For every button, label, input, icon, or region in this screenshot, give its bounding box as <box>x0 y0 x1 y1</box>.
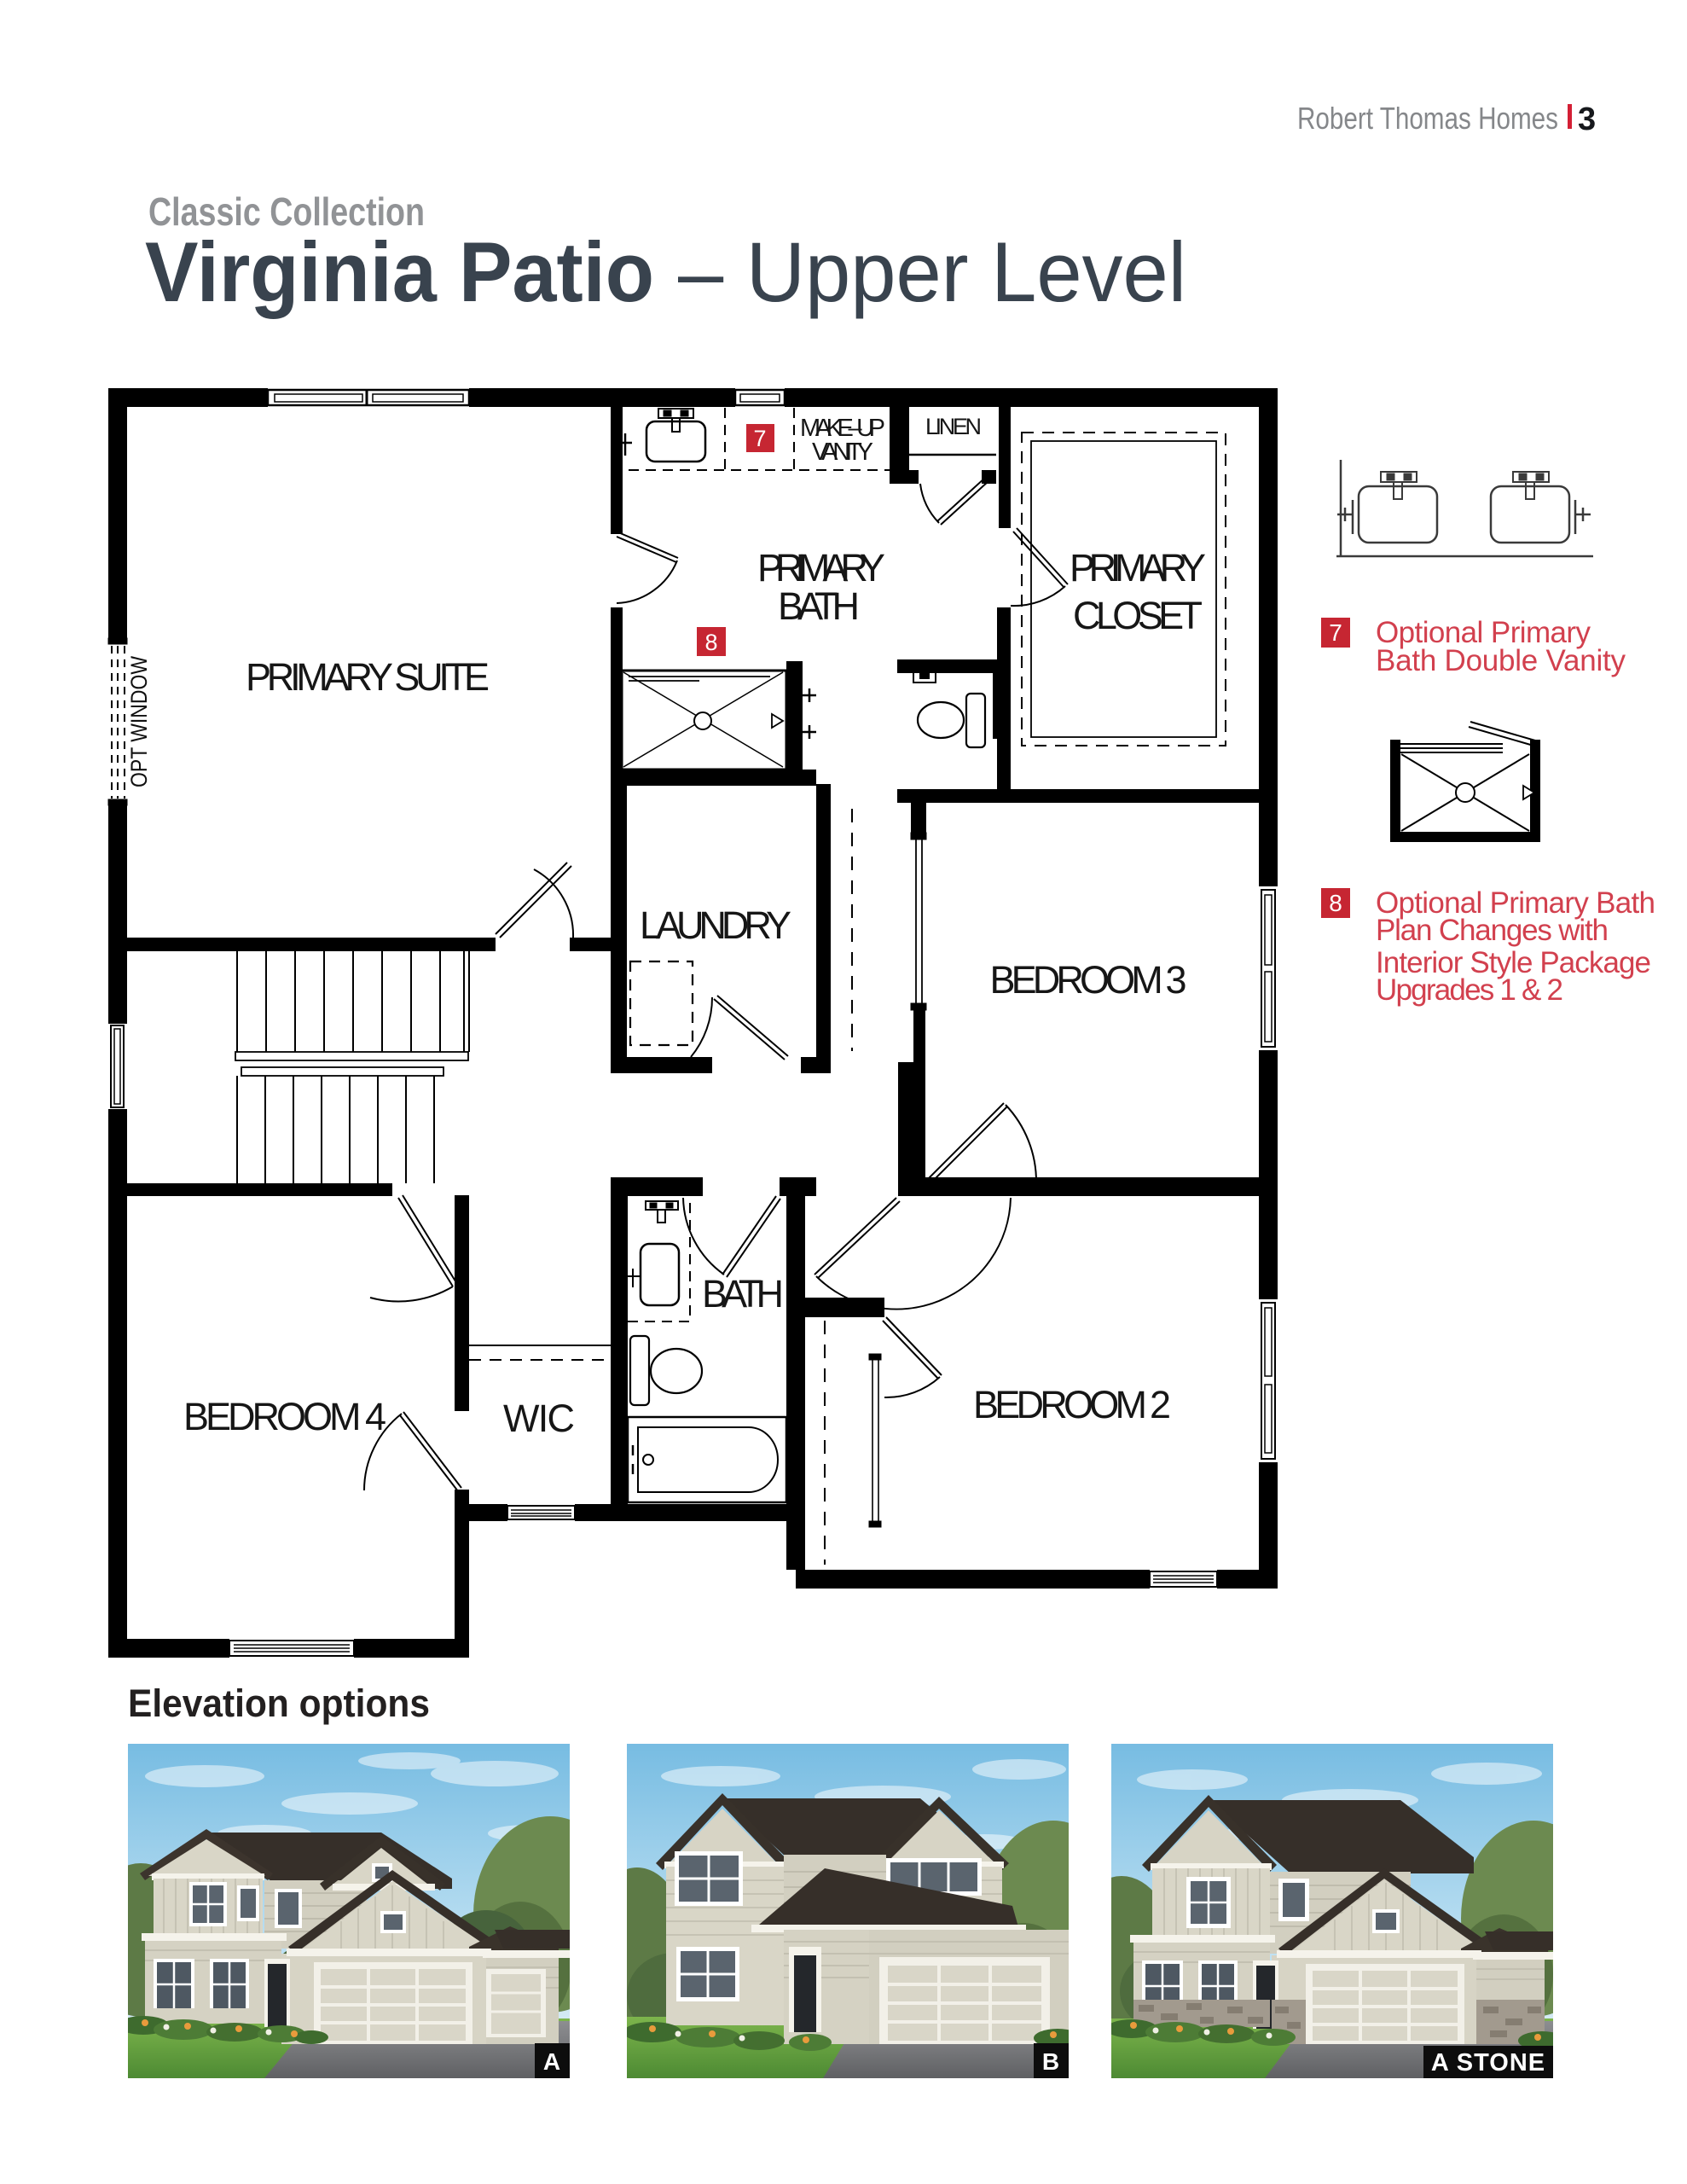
svg-text:Upgrades 1 & 2: Upgrades 1 & 2 <box>1376 973 1563 1007</box>
svg-text:PRIMARY SUITE: PRIMARY SUITE <box>246 655 490 699</box>
svg-text:A: A <box>543 2048 560 2075</box>
svg-text:Virginia Patio: Virginia Patio <box>145 224 654 319</box>
svg-text:BATH: BATH <box>778 584 860 628</box>
svg-text:8: 8 <box>1329 890 1342 916</box>
svg-text:Elevation options: Elevation options <box>128 1682 430 1725</box>
svg-text:7: 7 <box>1329 619 1342 646</box>
svg-text:PRIMARY: PRIMARY <box>1070 546 1206 590</box>
svg-text:CLOSET: CLOSET <box>1073 594 1203 637</box>
svg-text:LAUNDRY: LAUNDRY <box>640 903 791 947</box>
svg-text:Plan Changes with: Plan Changes with <box>1376 914 1609 947</box>
svg-text:– Upper Level: – Upper Level <box>678 224 1186 319</box>
svg-text:3: 3 <box>1578 102 1596 137</box>
svg-text:Robert Thomas Homes: Robert Thomas Homes <box>1297 101 1558 136</box>
svg-text:PRIMARY: PRIMARY <box>757 546 885 590</box>
svg-text:A STONE: A STONE <box>1431 2049 1545 2077</box>
svg-text:BEDROOM 2: BEDROOM 2 <box>973 1383 1171 1426</box>
svg-text:OPT WINDOW: OPT WINDOW <box>126 656 152 787</box>
svg-text:VANITY: VANITY <box>812 439 873 466</box>
svg-text:WIC: WIC <box>503 1397 575 1440</box>
svg-text:7: 7 <box>753 426 766 451</box>
svg-text:BEDROOM 3: BEDROOM 3 <box>990 958 1187 1002</box>
svg-text:Bath Double Vanity: Bath Double Vanity <box>1376 644 1626 677</box>
svg-text:LINEN: LINEN <box>925 414 982 439</box>
svg-text:B: B <box>1042 2048 1059 2075</box>
svg-text:BEDROOM 4: BEDROOM 4 <box>183 1395 386 1438</box>
svg-text:8: 8 <box>704 630 717 655</box>
svg-text:BATH: BATH <box>702 1272 784 1316</box>
